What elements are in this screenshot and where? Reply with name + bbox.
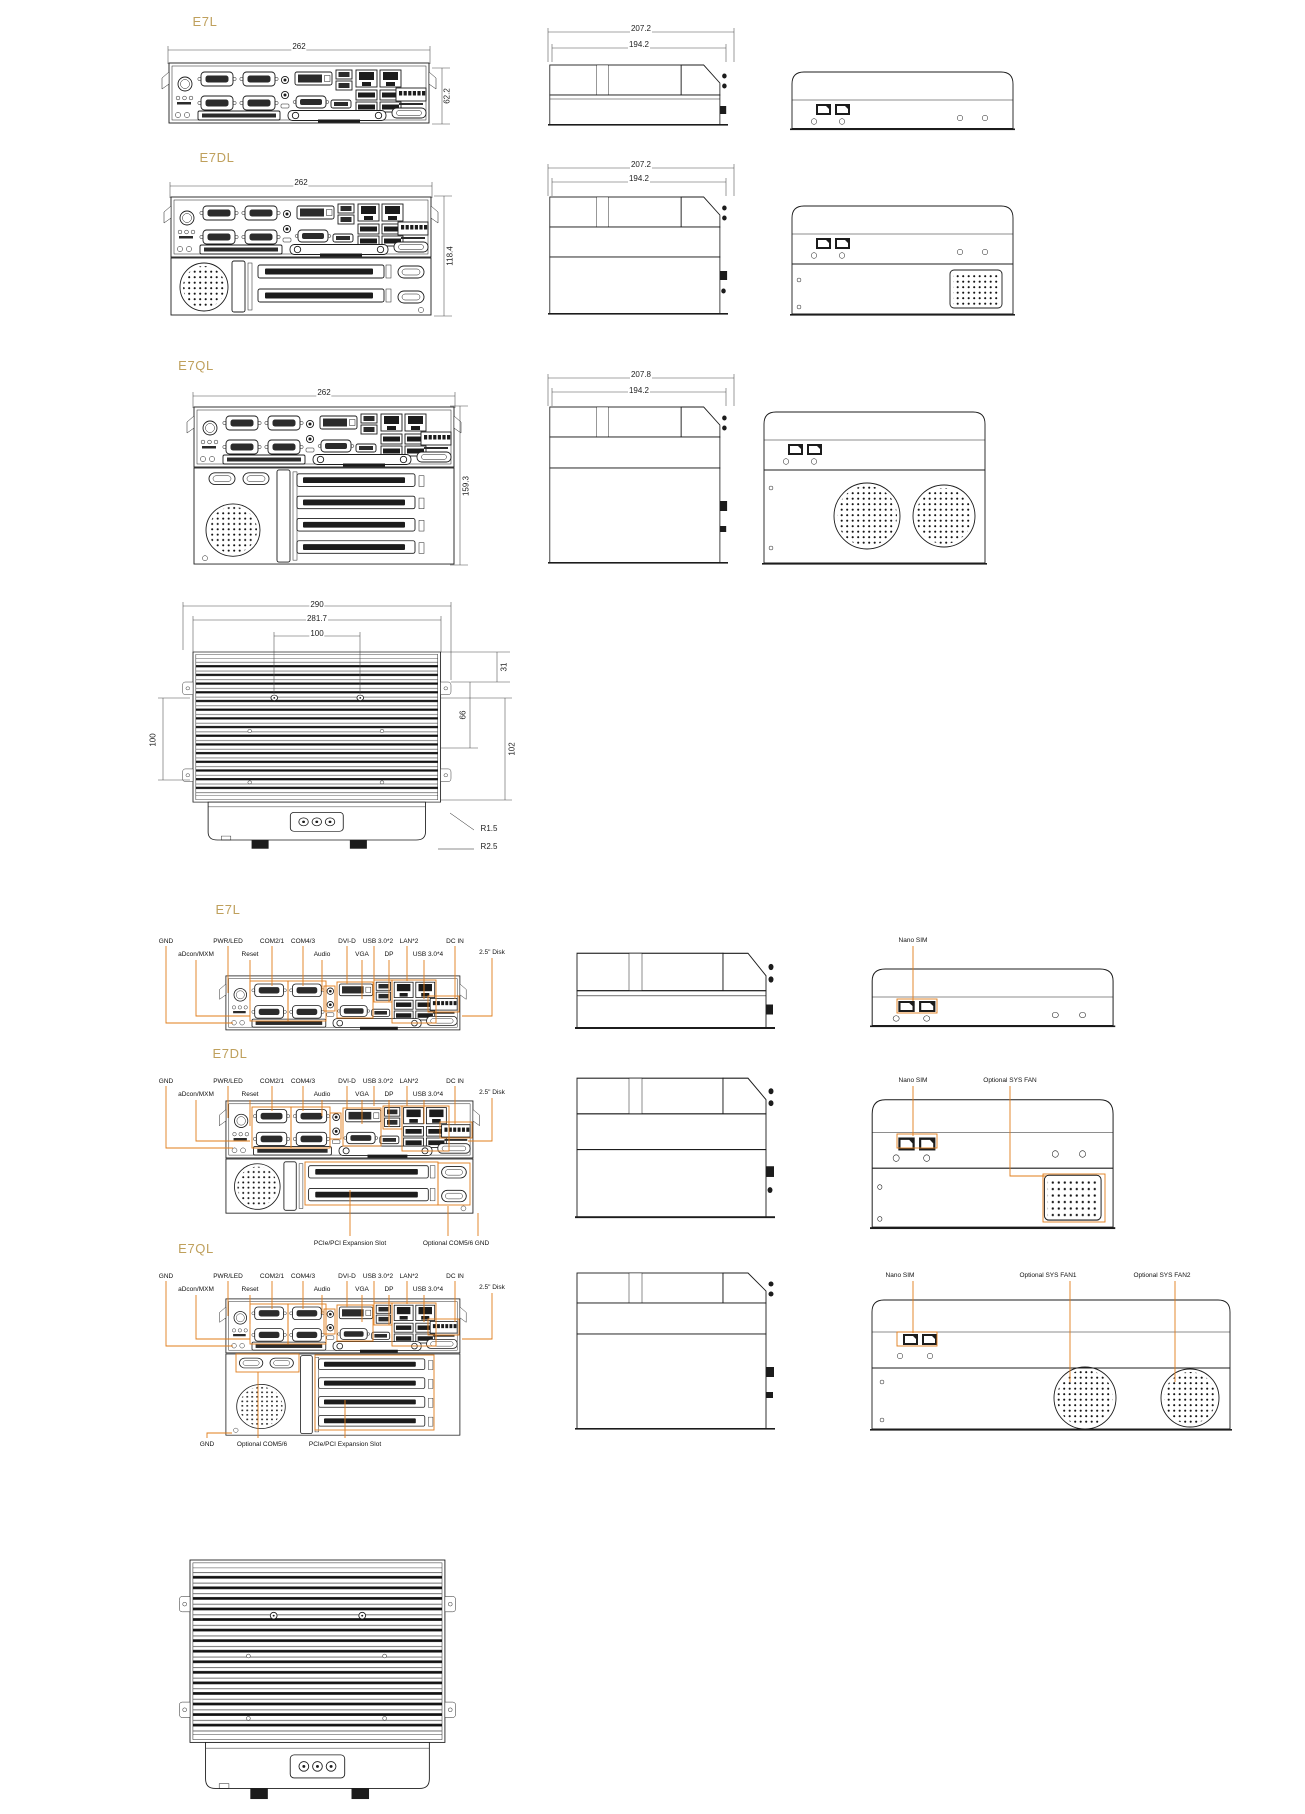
e7dl-label-com43: COM4/3 bbox=[291, 1078, 315, 1085]
e7l-side-view bbox=[548, 65, 728, 126]
e7ql-label-usb2: USB 3.0*2 bbox=[363, 1273, 393, 1280]
e7dl-width-dim: 262 bbox=[293, 178, 308, 187]
drawing-sheet: E7L E7DL E7QL E7L E7DL E7QL 262 62.2 207… bbox=[0, 0, 1305, 1814]
e7l-label-adcon: aDcon/MXM bbox=[178, 951, 214, 958]
e7dl-label-com56: Optional COM5/6 bbox=[423, 1240, 473, 1247]
e7dl-label-gnd: GND bbox=[159, 1078, 173, 1085]
e7ql-title: E7QL bbox=[178, 358, 214, 373]
e7ql-front-view bbox=[187, 407, 461, 564]
e7ql-label-com56: Optional COM5/6 bbox=[237, 1441, 287, 1448]
e7dl-labeled-rear bbox=[870, 1100, 1115, 1229]
e7ql-label-vga: VGA bbox=[355, 1286, 369, 1293]
e7dl-labeled-side bbox=[575, 1078, 775, 1218]
e7l-rear-view bbox=[790, 72, 1015, 130]
top-fillet1-dim: R1.5 bbox=[480, 824, 499, 833]
e7ql-label-usb4: USB 3.0*4 bbox=[413, 1286, 443, 1293]
e7ql-label-adcon: aDcon/MXM bbox=[178, 1286, 214, 1293]
e7dl-depth-dim: 207.2 bbox=[630, 160, 652, 169]
e7l-labeled-front bbox=[220, 976, 467, 1030]
e7l-title: E7L bbox=[193, 14, 218, 29]
e7dl-label-vga: VGA bbox=[355, 1091, 369, 1098]
e7l-label-vga: VGA bbox=[355, 951, 369, 958]
e7ql-label-audio: Audio bbox=[314, 1286, 331, 1293]
e7ql-label-dvi: DVI-D bbox=[338, 1273, 356, 1280]
e7ql-label-disk: 2.5" Disk bbox=[479, 1284, 505, 1291]
e7l-depth-dim: 207.2 bbox=[630, 24, 652, 33]
e7dl-side-view bbox=[548, 197, 728, 315]
e7ql-side-view bbox=[548, 407, 728, 564]
e7ql-label-com43: COM4/3 bbox=[291, 1273, 315, 1280]
e7dl-labeled-title: E7DL bbox=[213, 1046, 248, 1061]
e7dl-label-usb4: USB 3.0*4 bbox=[413, 1091, 443, 1098]
e7l-width-dim: 262 bbox=[291, 42, 306, 51]
e7l-label-pwrled: PWR/LED bbox=[213, 938, 243, 945]
e7ql-labeled-rear bbox=[870, 1300, 1232, 1431]
e7dl-front-view bbox=[164, 197, 438, 315]
line-art-canvas bbox=[0, 0, 1305, 1814]
e7dl-label-dp: DP bbox=[384, 1091, 393, 1098]
e7dl-label-adcon: aDcon/MXM bbox=[178, 1091, 214, 1098]
e7l-label-disk: 2.5" Disk bbox=[479, 949, 505, 956]
top-overall-width-dim: 290 bbox=[309, 600, 324, 609]
e7l-depth-inner-dim: 194.2 bbox=[628, 40, 650, 49]
e7ql-depth-dim: 207.8 bbox=[630, 370, 652, 379]
e7dl-label-expansion: PCIe/PCI Expansion Slot bbox=[314, 1240, 386, 1247]
top-edge-offset-dim: 31 bbox=[500, 662, 509, 673]
e7dl-depth-inner-dim: 194.2 bbox=[628, 174, 650, 183]
e7ql-label-gnd: GND bbox=[159, 1273, 173, 1280]
e7ql-label-nanosim: Nano SIM bbox=[886, 1272, 915, 1279]
e7l-label-reset: Reset bbox=[242, 951, 259, 958]
e7dl-title: E7DL bbox=[200, 150, 235, 165]
top-hole-spacing-dim: 100 bbox=[309, 629, 324, 638]
e7l-labeled-rear bbox=[870, 969, 1115, 1027]
e7ql-label-sysfan2: Optional SYS FAN2 bbox=[1133, 1272, 1190, 1279]
e7dl-label-com21: COM2/1 bbox=[260, 1078, 284, 1085]
e7l-label-gnd: GND bbox=[159, 938, 173, 945]
e7dl-label-gnd2: GND bbox=[475, 1240, 489, 1247]
e7l-label-dvi: DVI-D bbox=[338, 938, 356, 945]
e7dl-label-dvi: DVI-D bbox=[338, 1078, 356, 1085]
e7ql-label-lan: LAN*2 bbox=[400, 1273, 419, 1280]
e7dl-rear-view bbox=[790, 206, 1015, 316]
e7dl-label-disk: 2.5" Disk bbox=[479, 1089, 505, 1096]
e7dl-label-nanosim: Nano SIM bbox=[899, 1077, 928, 1084]
e7dl-label-dcin: DC IN bbox=[446, 1078, 464, 1085]
top-hole-spacing-y-dim: 100 bbox=[149, 732, 158, 747]
e7l-label-usb2: USB 3.0*2 bbox=[363, 938, 393, 945]
e7ql-height-dim: 159.3 bbox=[462, 475, 471, 497]
e7ql-label-sysfan1: Optional SYS FAN1 bbox=[1019, 1272, 1076, 1279]
e7ql-label-dp: DP bbox=[384, 1286, 393, 1293]
top-view bbox=[183, 652, 451, 849]
e7l-height-dim: 62.2 bbox=[443, 87, 452, 105]
e7dl-label-pwrled: PWR/LED bbox=[213, 1078, 243, 1085]
e7dl-label-lan: LAN*2 bbox=[400, 1078, 419, 1085]
e7l-label-usb4: USB 3.0*4 bbox=[413, 951, 443, 958]
e7l-label-com21: COM2/1 bbox=[260, 938, 284, 945]
e7l-label-audio: Audio bbox=[314, 951, 331, 958]
e7dl-label-reset: Reset bbox=[242, 1091, 259, 1098]
e7l-front-view bbox=[162, 63, 436, 123]
e7dl-labeled-front bbox=[219, 1101, 479, 1213]
e7dl-label-sysfan: Optional SYS FAN bbox=[983, 1077, 1036, 1084]
e7ql-label-com21: COM2/1 bbox=[260, 1273, 284, 1280]
e7l-label-dp: DP bbox=[384, 951, 393, 958]
e7l-label-lan: LAN*2 bbox=[400, 938, 419, 945]
e7dl-label-usb2: USB 3.0*2 bbox=[363, 1078, 393, 1085]
e7l-label-com43: COM4/3 bbox=[291, 938, 315, 945]
bottom-top-view bbox=[179, 1560, 455, 1799]
e7dl-height-dim: 118.4 bbox=[446, 245, 455, 266]
e7ql-label-expansion: PCIe/PCI Expansion Slot bbox=[309, 1441, 381, 1448]
e7ql-label-reset: Reset bbox=[242, 1286, 259, 1293]
e7ql-width-dim: 262 bbox=[316, 388, 331, 397]
e7ql-depth-inner-dim: 194.2 bbox=[628, 386, 650, 395]
e7ql-rear-view bbox=[762, 412, 987, 565]
top-inner-width-dim: 281.7 bbox=[306, 614, 328, 623]
top-mid-offset-dim: 66 bbox=[459, 710, 468, 721]
e7l-label-dcin: DC IN bbox=[446, 938, 464, 945]
top-lower-offset-dim: 102 bbox=[508, 741, 517, 756]
top-view-radius-leaders bbox=[438, 813, 474, 849]
top-fillet2-dim: R2.5 bbox=[480, 842, 499, 851]
e7ql-label-gnd2: GND bbox=[200, 1441, 214, 1448]
e7ql-label-dcin: DC IN bbox=[446, 1273, 464, 1280]
e7ql-labeled-title: E7QL bbox=[178, 1241, 214, 1256]
e7ql-labeled-side bbox=[575, 1273, 775, 1430]
e7l-label-nanosim: Nano SIM bbox=[899, 937, 928, 944]
e7ql-label-pwrled: PWR/LED bbox=[213, 1273, 243, 1280]
e7dl-label-audio: Audio bbox=[314, 1091, 331, 1098]
e7l-labeled-side bbox=[575, 953, 775, 1029]
e7l-labeled-title: E7L bbox=[216, 902, 241, 917]
